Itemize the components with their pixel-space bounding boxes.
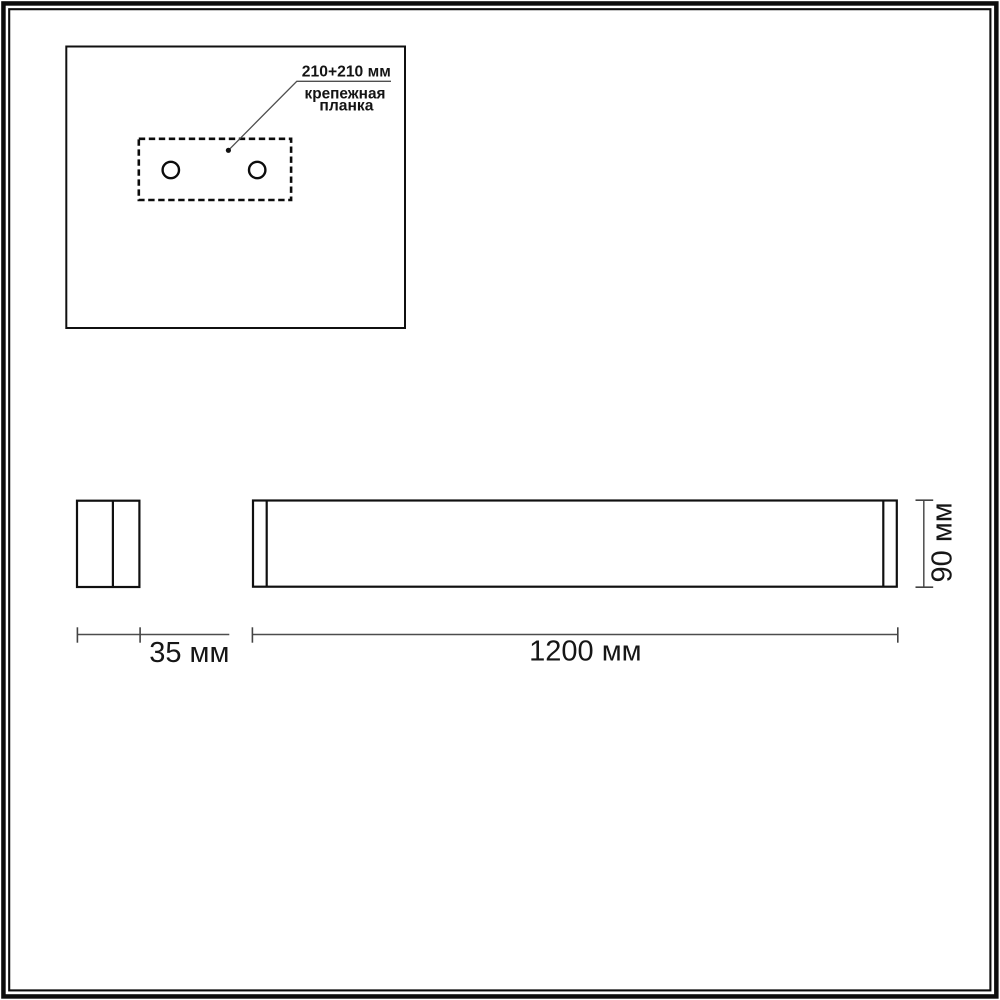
svg-text:планка: планка [319, 98, 373, 115]
svg-text:1200 мм: 1200 мм [529, 636, 641, 668]
svg-text:210+210 мм: 210+210 мм [302, 64, 391, 81]
svg-text:90 мм: 90 мм [927, 502, 959, 582]
svg-text:35 мм: 35 мм [149, 637, 229, 669]
